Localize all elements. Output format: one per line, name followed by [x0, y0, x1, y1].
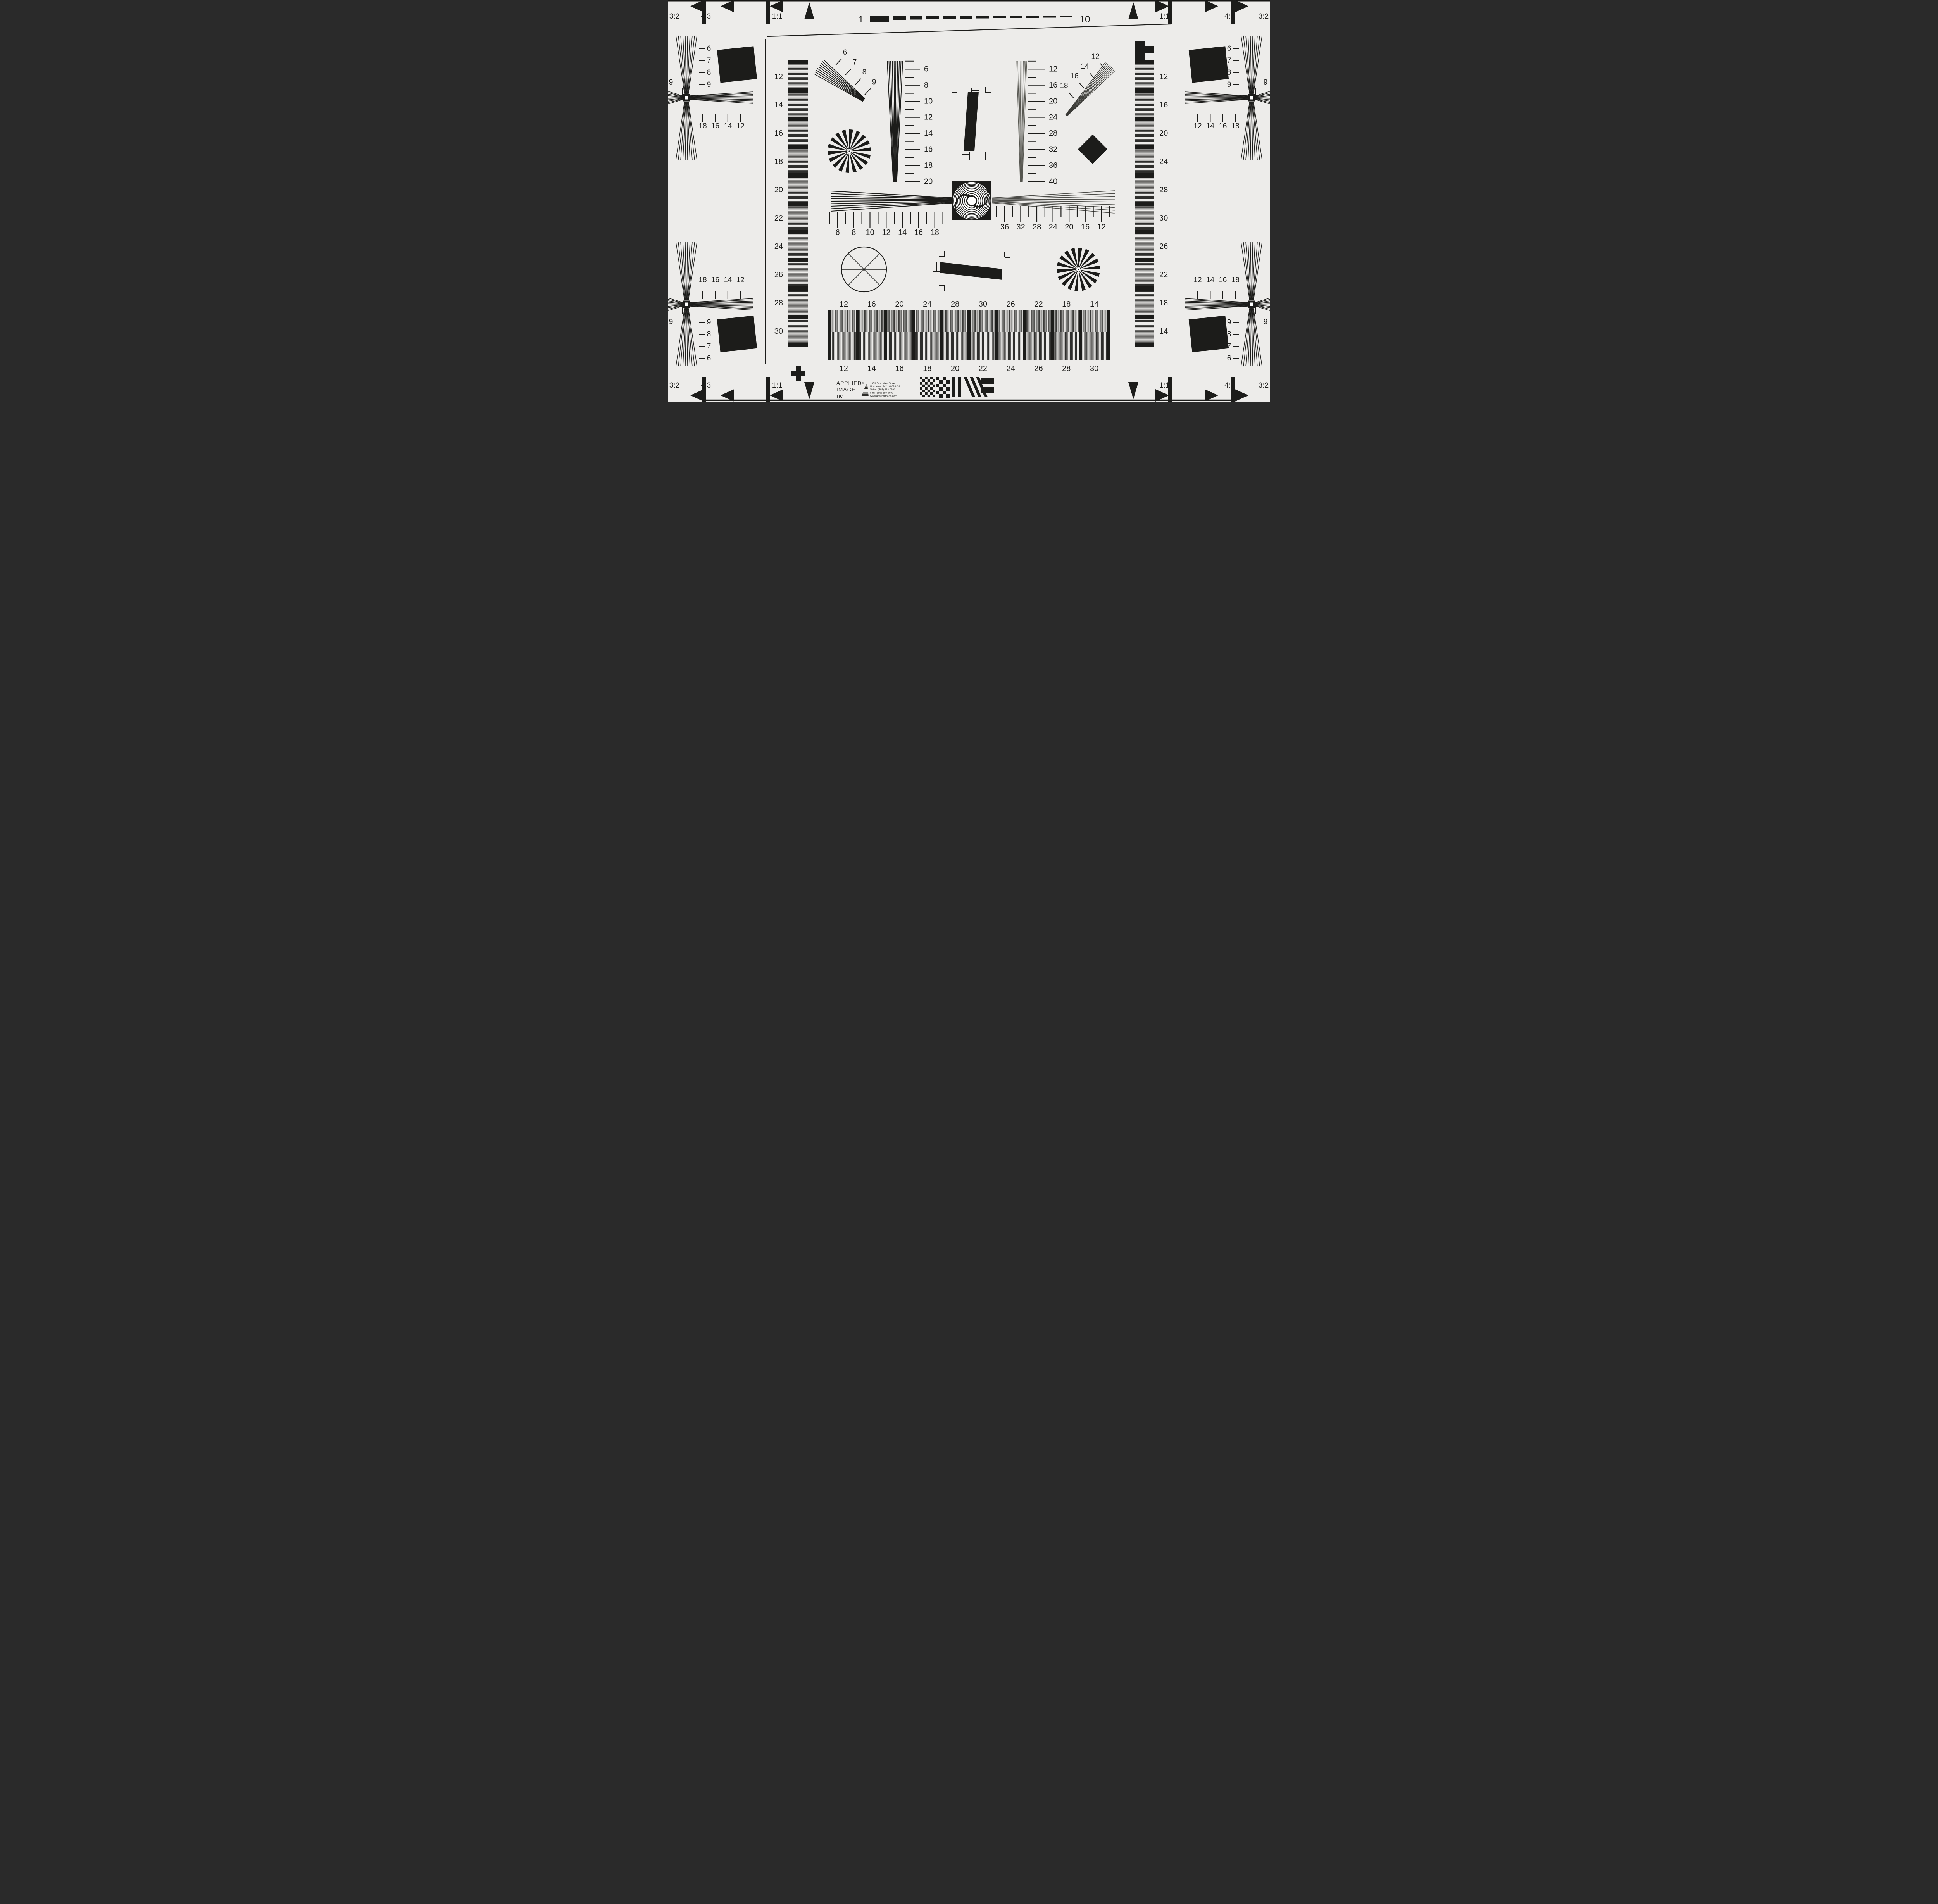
svg-text:3:2: 3:2 [1259, 12, 1269, 21]
svg-text:14: 14 [1081, 62, 1089, 71]
svg-text:9: 9 [1264, 318, 1268, 326]
svg-text:1:1: 1:1 [1159, 381, 1169, 390]
svg-text:Rochester, NY 14609 USA: Rochester, NY 14609 USA [870, 385, 901, 388]
svg-text:28: 28 [1159, 186, 1168, 194]
svg-text:28: 28 [1033, 223, 1041, 231]
svg-text:8: 8 [852, 228, 856, 237]
svg-text:12: 12 [736, 276, 745, 284]
svg-text:28: 28 [1062, 364, 1071, 373]
svg-text:16: 16 [774, 129, 783, 138]
svg-text:16: 16 [1159, 101, 1168, 109]
svg-text:9: 9 [1227, 81, 1231, 89]
svg-text:18: 18 [1062, 300, 1071, 309]
svg-text:16: 16 [1219, 122, 1227, 130]
svg-text:20: 20 [1159, 129, 1168, 138]
svg-text:20: 20 [1049, 97, 1057, 105]
svg-text:16: 16 [924, 145, 933, 154]
svg-text:18: 18 [924, 161, 933, 170]
svg-text:18: 18 [1231, 122, 1240, 130]
svg-text:9: 9 [707, 318, 711, 326]
svg-text:24: 24 [774, 242, 783, 251]
svg-text:7: 7 [853, 59, 857, 67]
svg-text:Inc: Inc [835, 393, 843, 399]
svg-text:12: 12 [924, 113, 933, 122]
svg-text:12: 12 [840, 364, 848, 373]
svg-text:16: 16 [1049, 81, 1057, 90]
svg-text:www.appliedimage.com: www.appliedimage.com [870, 395, 897, 397]
svg-text:16: 16 [1219, 276, 1227, 284]
svg-text:16: 16 [867, 300, 876, 309]
svg-text:14: 14 [1159, 327, 1168, 336]
svg-text:20: 20 [951, 364, 959, 373]
svg-text:Fax: (585) 288-5989: Fax: (585) 288-5989 [870, 391, 893, 394]
svg-text:1:1: 1:1 [772, 12, 782, 21]
svg-text:14: 14 [924, 129, 933, 138]
svg-text:30: 30 [774, 327, 783, 336]
svg-text:8: 8 [707, 330, 711, 338]
svg-text:12: 12 [1193, 122, 1202, 130]
svg-text:6: 6 [835, 228, 840, 237]
svg-text:12: 12 [840, 300, 848, 309]
svg-text:16: 16 [711, 276, 719, 284]
svg-text:14: 14 [1206, 122, 1215, 130]
svg-text:22: 22 [1034, 300, 1043, 309]
svg-text:30: 30 [1159, 214, 1168, 222]
svg-text:12: 12 [882, 228, 890, 237]
svg-text:IMAGE: IMAGE [836, 387, 856, 393]
svg-text:9: 9 [872, 78, 876, 86]
svg-text:36: 36 [1049, 161, 1057, 170]
svg-text:22: 22 [979, 364, 987, 373]
svg-text:26: 26 [1034, 364, 1043, 373]
svg-text:16: 16 [1070, 72, 1078, 80]
svg-text:18: 18 [774, 157, 783, 166]
svg-text:1: 1 [858, 14, 863, 25]
svg-text:4:3: 4:3 [1224, 12, 1235, 21]
svg-text:12: 12 [774, 72, 783, 81]
svg-text:26: 26 [1159, 242, 1168, 251]
svg-text:8: 8 [707, 69, 711, 77]
svg-text:20: 20 [895, 300, 903, 309]
svg-text:18: 18 [698, 276, 707, 284]
svg-text:28: 28 [774, 299, 783, 307]
svg-text:4:3: 4:3 [1224, 381, 1235, 390]
svg-text:24: 24 [1049, 223, 1057, 231]
svg-text:18: 18 [698, 122, 707, 130]
svg-text:26: 26 [774, 271, 783, 279]
svg-text:14: 14 [867, 364, 876, 373]
svg-text:32: 32 [1016, 223, 1025, 231]
svg-text:14: 14 [724, 276, 732, 284]
svg-text:12: 12 [1097, 223, 1105, 231]
svg-text:6: 6 [707, 45, 711, 53]
svg-text:20: 20 [774, 186, 783, 194]
svg-text:3:2: 3:2 [669, 381, 679, 390]
svg-text:28: 28 [1049, 129, 1057, 138]
svg-text:3:2: 3:2 [1259, 381, 1269, 390]
svg-text:32: 32 [1049, 145, 1057, 154]
svg-text:10: 10 [924, 97, 933, 105]
svg-text:24: 24 [923, 300, 931, 309]
svg-text:18: 18 [1231, 276, 1240, 284]
svg-text:40: 40 [1049, 177, 1057, 186]
svg-text:6: 6 [1227, 45, 1231, 53]
segmented-circle [841, 247, 886, 292]
svg-text:6: 6 [1227, 354, 1231, 362]
svg-text:14: 14 [1206, 276, 1215, 284]
svg-text:24: 24 [1159, 157, 1168, 166]
svg-text:12: 12 [1159, 72, 1168, 81]
svg-text:9: 9 [707, 81, 711, 89]
svg-text:24: 24 [1007, 364, 1015, 373]
svg-text:26: 26 [1007, 300, 1015, 309]
svg-text:8: 8 [862, 68, 867, 76]
svg-text:1653 East Main Street: 1653 East Main Street [870, 382, 895, 385]
svg-text:14: 14 [774, 101, 783, 109]
logo-line-applied: APPLIED [836, 380, 862, 386]
svg-text:7: 7 [1227, 57, 1231, 65]
svg-text:Voice: (585) 482-0300: Voice: (585) 482-0300 [870, 388, 895, 391]
svg-text:6: 6 [843, 48, 847, 57]
svg-text:24: 24 [1049, 113, 1057, 122]
svg-text:18: 18 [923, 364, 931, 373]
svg-text:16: 16 [914, 228, 923, 237]
svg-text:16: 16 [711, 122, 719, 130]
svg-text:9: 9 [669, 78, 673, 86]
svg-text:12: 12 [1193, 276, 1202, 284]
svg-text:3:2: 3:2 [669, 12, 679, 21]
svg-text:30: 30 [979, 300, 987, 309]
svg-text:9: 9 [669, 318, 673, 326]
svg-text:16: 16 [1081, 223, 1090, 231]
svg-text:10: 10 [866, 228, 874, 237]
bullseye-target [952, 181, 991, 220]
iso-resolution-test-chart: 3:24:31:11:14:33:23:24:31:11:14:33:21106… [668, 0, 1270, 402]
svg-text:8: 8 [924, 81, 928, 90]
svg-text:14: 14 [724, 122, 732, 130]
svg-text:12: 12 [1091, 53, 1099, 61]
svg-text:18: 18 [931, 228, 939, 237]
svg-text:7: 7 [707, 57, 711, 65]
svg-text:7: 7 [707, 342, 711, 350]
svg-text:9: 9 [1264, 78, 1268, 86]
svg-text:12: 12 [1049, 65, 1057, 74]
svg-text:14: 14 [898, 228, 907, 237]
svg-text:10: 10 [1080, 14, 1090, 25]
svg-text:20: 20 [1065, 223, 1073, 231]
svg-text:4:3: 4:3 [701, 381, 711, 390]
svg-text:22: 22 [774, 214, 783, 222]
svg-text:9: 9 [1227, 318, 1231, 326]
svg-text:4:3: 4:3 [701, 12, 711, 21]
svg-text:12: 12 [736, 122, 745, 130]
svg-text:14: 14 [1090, 300, 1098, 309]
svg-text:36: 36 [1000, 223, 1009, 231]
screenshot-root: 3:24:31:11:14:33:23:24:31:11:14:33:21106… [668, 0, 1270, 402]
svg-text:1:1: 1:1 [772, 381, 782, 390]
svg-text:18: 18 [1060, 82, 1068, 90]
svg-text:1:1: 1:1 [1159, 12, 1169, 21]
svg-text:6: 6 [707, 354, 711, 362]
svg-text:®: ® [862, 382, 864, 385]
svg-text:18: 18 [1159, 299, 1168, 307]
svg-text:22: 22 [1159, 271, 1168, 279]
svg-text:16: 16 [895, 364, 903, 373]
svg-text:20: 20 [924, 177, 933, 186]
svg-text:8: 8 [1227, 330, 1231, 338]
svg-text:30: 30 [1090, 364, 1098, 373]
svg-text:6: 6 [924, 65, 928, 74]
svg-text:28: 28 [951, 300, 959, 309]
